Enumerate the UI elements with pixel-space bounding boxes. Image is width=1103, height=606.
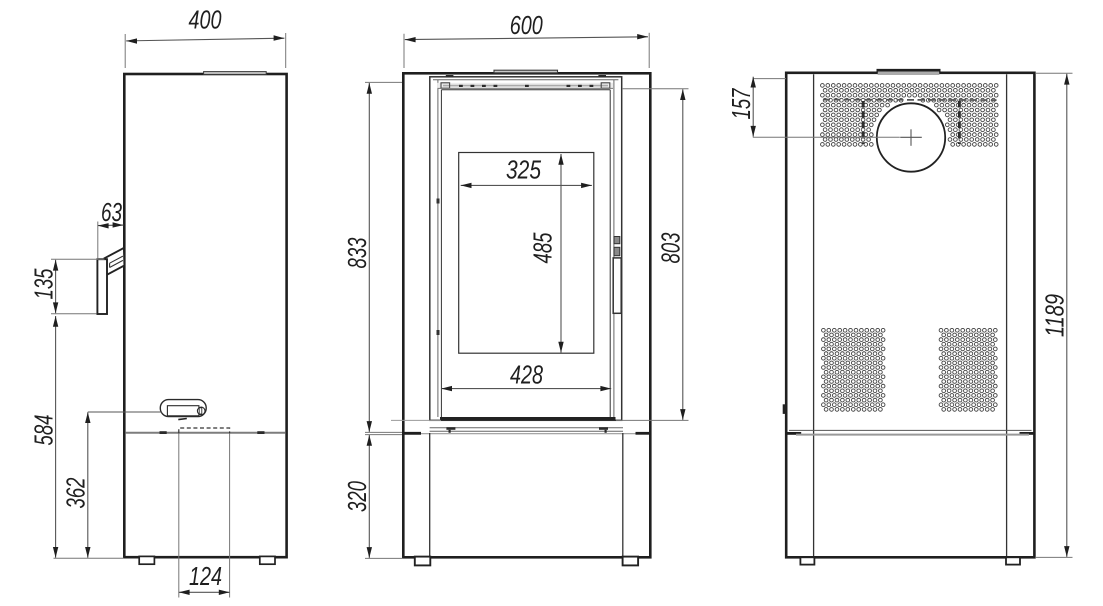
- svg-text:833: 833: [342, 237, 372, 268]
- svg-text:135: 135: [28, 268, 58, 299]
- svg-text:584: 584: [28, 415, 58, 446]
- svg-text:157: 157: [726, 87, 756, 119]
- svg-text:325: 325: [506, 155, 541, 185]
- svg-text:63: 63: [101, 197, 122, 227]
- svg-text:400: 400: [189, 5, 222, 35]
- svg-text:485: 485: [528, 232, 558, 263]
- svg-text:1189: 1189: [1040, 294, 1070, 337]
- svg-text:428: 428: [510, 359, 543, 389]
- svg-text:803: 803: [656, 232, 686, 263]
- svg-text:362: 362: [61, 477, 91, 508]
- svg-text:124: 124: [189, 561, 222, 591]
- svg-text:320: 320: [342, 481, 372, 512]
- svg-text:600: 600: [510, 10, 543, 40]
